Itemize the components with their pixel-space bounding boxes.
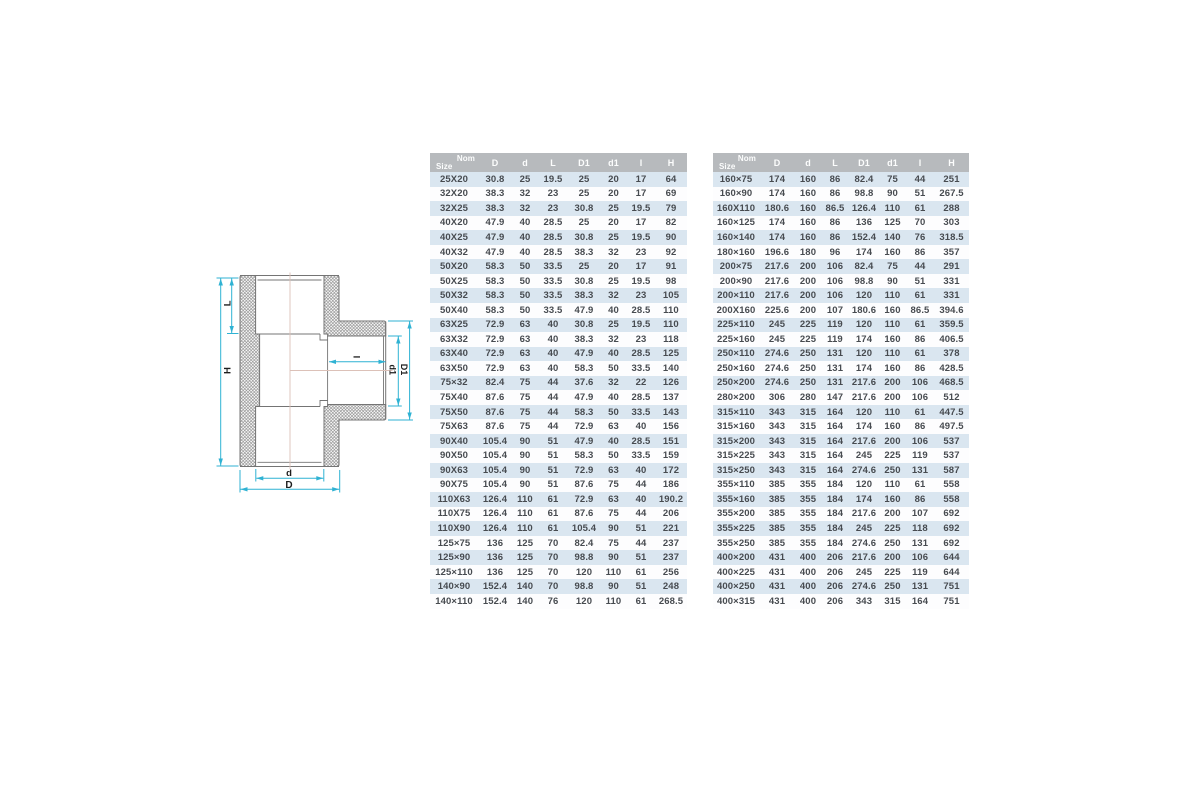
svg-text:D: D <box>285 480 292 491</box>
svg-text:d: d <box>286 468 292 479</box>
svg-text:d1: d1 <box>387 364 397 375</box>
svg-text:H: H <box>222 367 233 374</box>
svg-text:L: L <box>223 300 234 306</box>
svg-text:D1: D1 <box>399 364 409 376</box>
svg-text:l: l <box>352 356 363 359</box>
